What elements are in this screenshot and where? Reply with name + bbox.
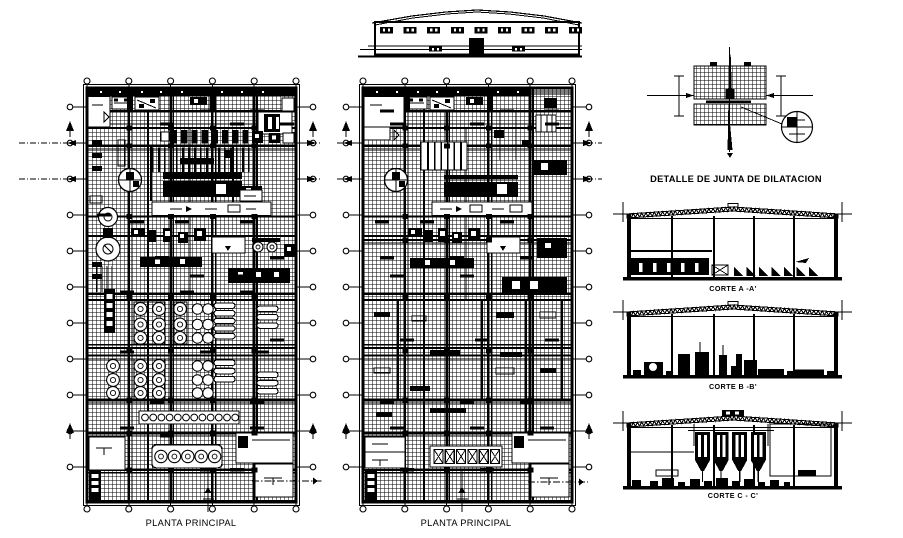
svg-text:CORTE C - C': CORTE C - C' [708, 491, 758, 500]
svg-text:CORTE B -B': CORTE B -B' [709, 382, 757, 391]
svg-text:DETALLE DE JUNTA DE DILATACION: DETALLE DE JUNTA DE DILATACION [650, 174, 822, 184]
svg-text:PLANTA PRINCIPAL: PLANTA PRINCIPAL [146, 518, 237, 528]
svg-text:CORTE A -A': CORTE A -A' [709, 284, 757, 293]
svg-text:PLANTA PRINCIPAL: PLANTA PRINCIPAL [421, 518, 512, 528]
